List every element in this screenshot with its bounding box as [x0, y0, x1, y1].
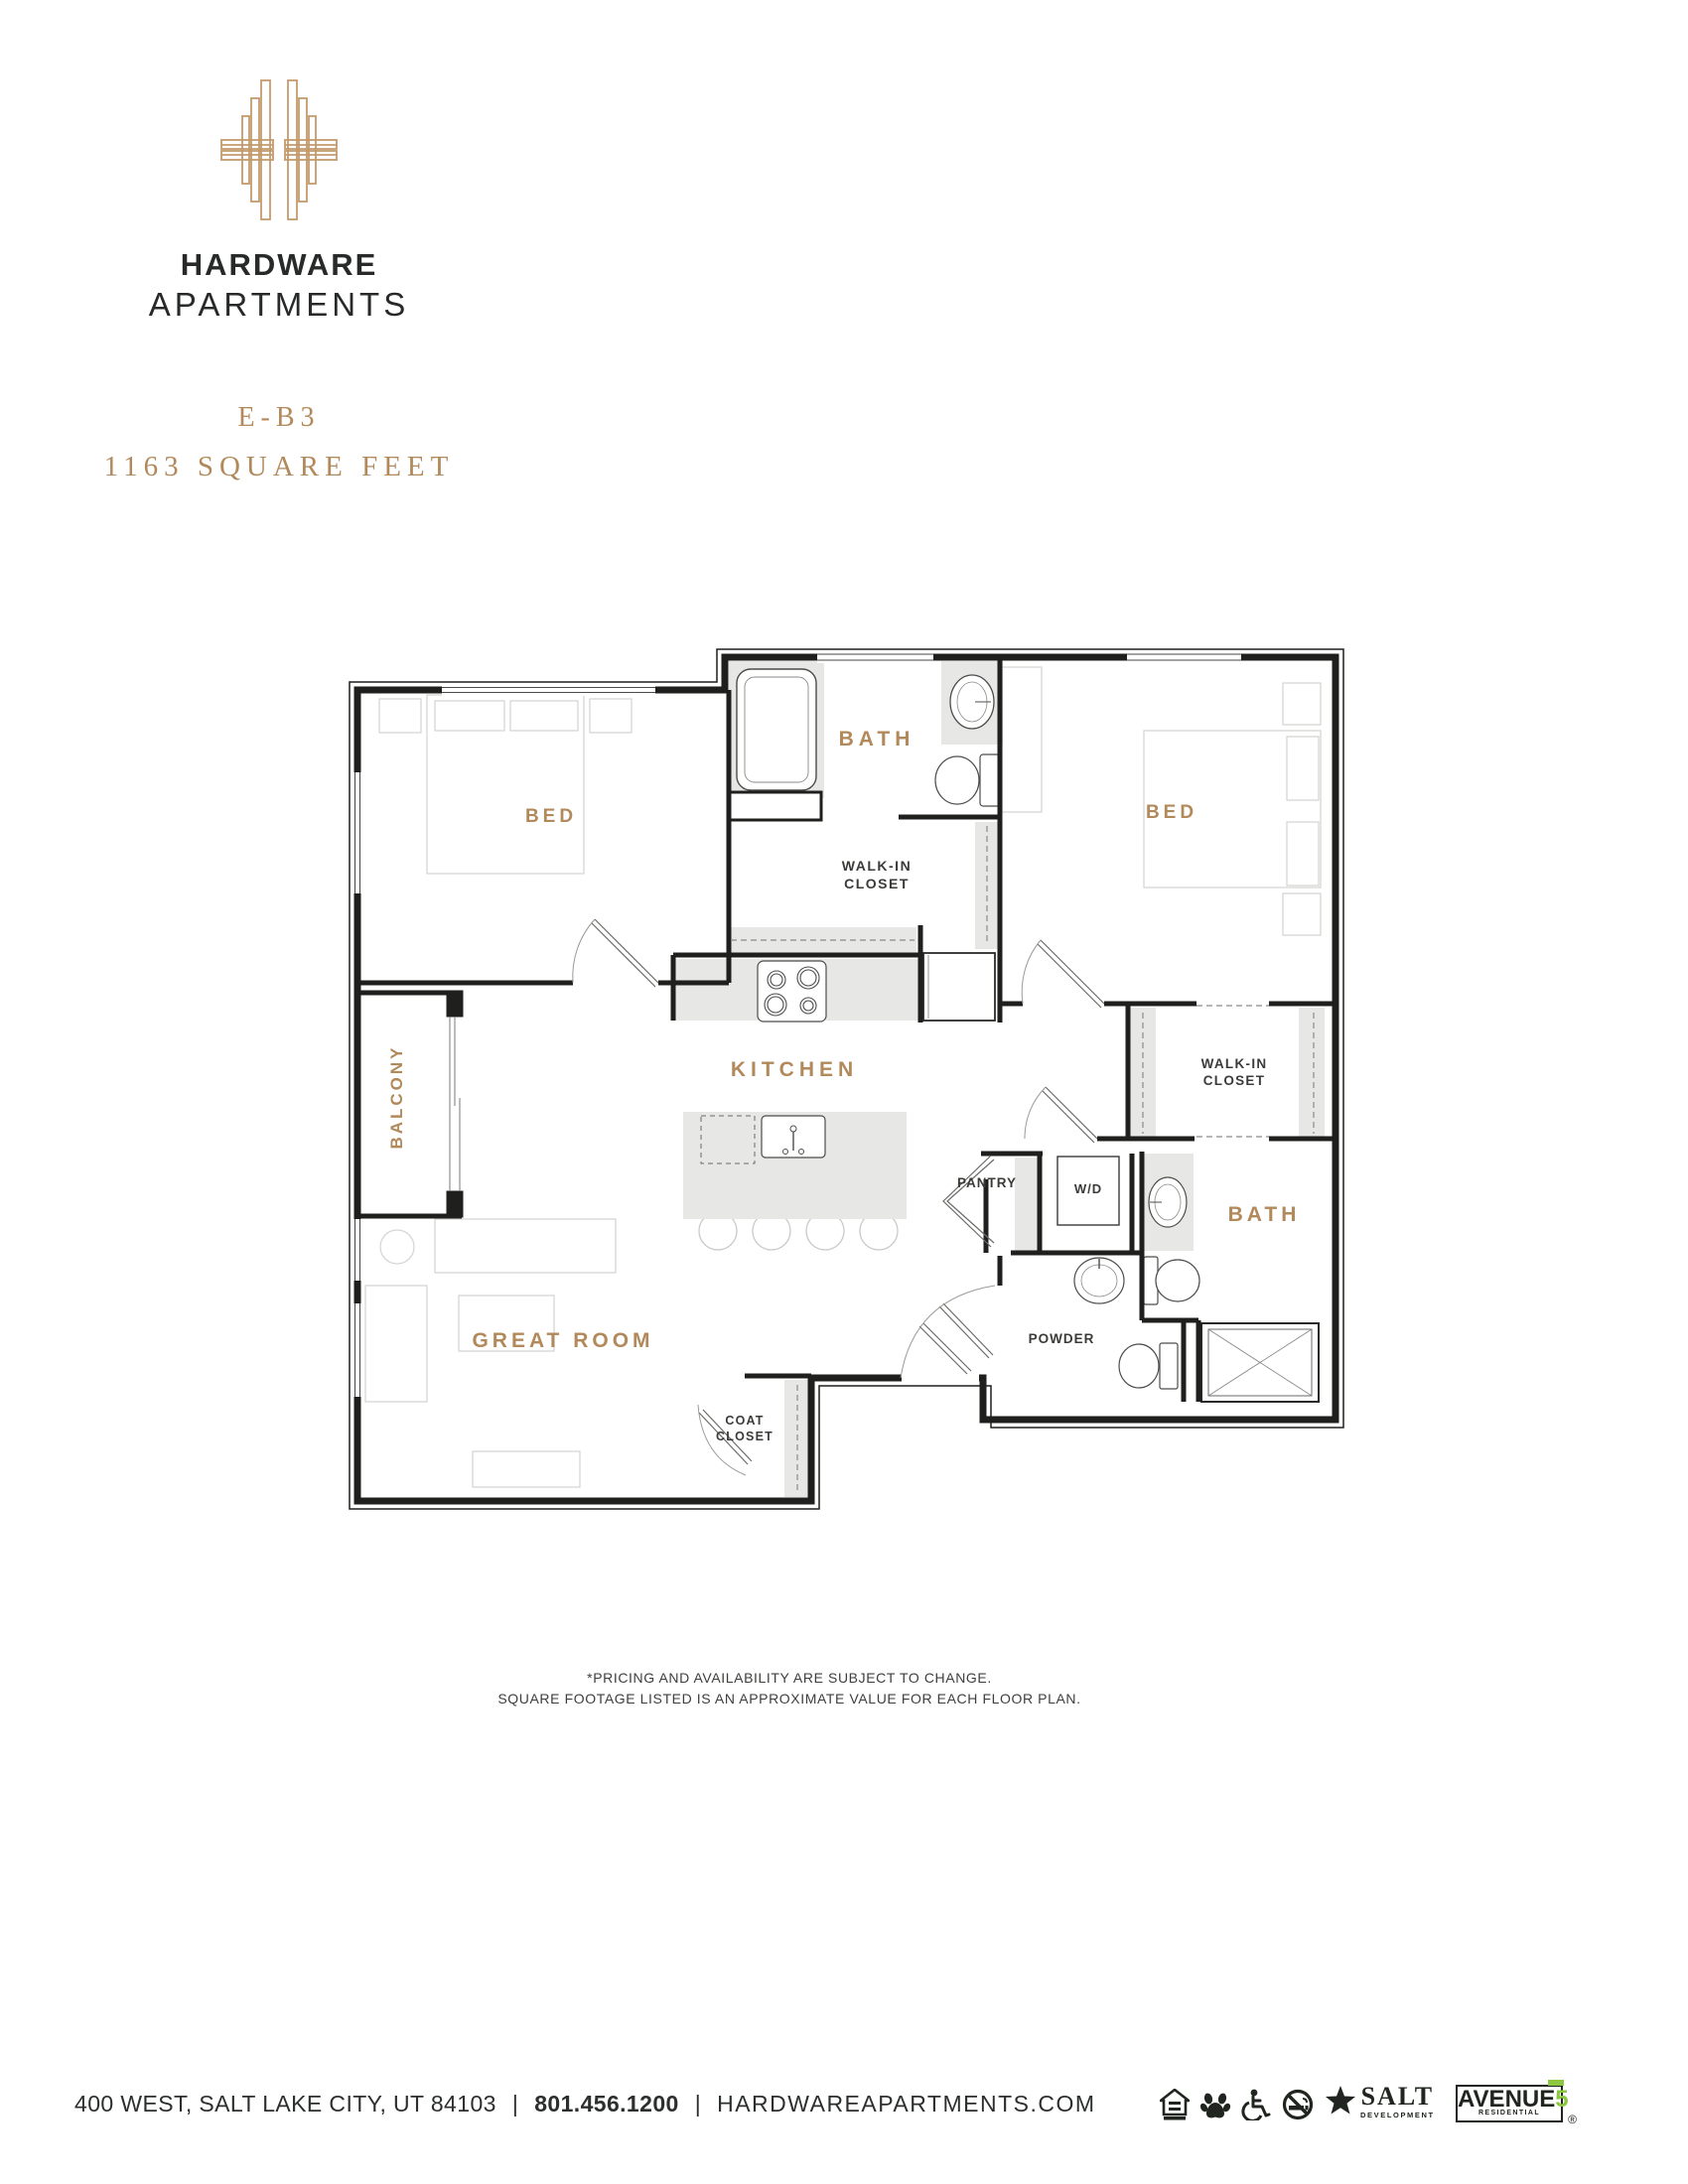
salt-logo-name: SALT — [1360, 2085, 1435, 2109]
label-washer-dryer: W/D — [1074, 1181, 1102, 1196]
floor-plan-flyer-page: HARDWARE APARTMENTS E-B3 1163 SQUARE FEE… — [0, 0, 1688, 2184]
bed-left-door-leaf — [592, 919, 658, 987]
footer-website: HARDWAREAPARTMENTS.COM — [717, 2091, 1095, 2116]
label-balcony: BALCONY — [387, 1044, 406, 1149]
brand-name-line2: APARTMENTS — [80, 286, 478, 324]
salt-development-logo: SALT DEVELOPMENT — [1325, 2085, 1435, 2119]
bathtub-fixture — [737, 669, 816, 790]
disclaimer-line2: SQUARE FOOTAGE LISTED IS AN APPROXIMATE … — [293, 1689, 1286, 1709]
footer-contact-line: 400 WEST, SALT LAKE CITY, UT 84103|801.4… — [74, 2091, 1096, 2117]
bath-vanity — [729, 792, 821, 820]
avenue5-residential-logo: AVENUE5 RESIDENTIAL ® — [1456, 2085, 1563, 2122]
label-bed-right: BED — [1146, 802, 1197, 823]
refrigerator-fixture — [923, 953, 995, 1021]
bed-left-furniture — [427, 695, 584, 874]
label-powder: POWDER — [1029, 1331, 1095, 1346]
avenue5-digit: 5 — [1555, 2086, 1568, 2113]
plan-unit-code: E-B3 — [80, 402, 478, 434]
disclaimer-line1: *PRICING AND AVAILABILITY ARE SUBJECT TO… — [293, 1668, 1286, 1689]
label-bath-top: BATH — [839, 728, 915, 751]
footer-separator: | — [512, 2091, 518, 2116]
salt-star-icon — [1325, 2085, 1356, 2116]
registered-trademark-symbol: ® — [1568, 2113, 1577, 2126]
powder-toilet-fixture — [1160, 1343, 1178, 1389]
wheelchair-accessible-icon — [1241, 2089, 1271, 2120]
label-bed-left: BED — [525, 806, 577, 827]
avenue5-logo-box: AVENUE5 RESIDENTIAL ® — [1456, 2085, 1563, 2122]
label-walkin-right-line1: WALK-IN — [1201, 1056, 1268, 1071]
label-walkin-right-line2: CLOSET — [1203, 1073, 1266, 1088]
salt-logo-subtitle: DEVELOPMENT — [1360, 2111, 1435, 2119]
avenue5-word: AVENUE — [1458, 2086, 1555, 2113]
label-pantry: PANTRY — [957, 1175, 1017, 1190]
floor-plan-drawing: BED BATH WALK-IN CLOSET BED BALCONY KITC… — [328, 596, 1350, 1539]
label-kitchen: KITCHEN — [731, 1058, 858, 1081]
fixtures — [701, 669, 1319, 1402]
bath-top-toilet-fixture — [980, 754, 1000, 806]
avenue5-green-notch — [1548, 2080, 1564, 2086]
label-coat-closet-line1: COAT — [725, 1414, 764, 1428]
plan-title-block: E-B3 1163 SQUARE FEET — [80, 402, 478, 483]
no-smoking-icon — [1282, 2089, 1314, 2120]
sofa-furniture — [435, 1219, 616, 1273]
plan-square-feet: 1163 SQUARE FEET — [80, 451, 478, 483]
footer-phone: 801.456.1200 — [534, 2091, 679, 2116]
brand-block: HARDWARE APARTMENTS — [80, 79, 478, 324]
disclaimer-block: *PRICING AND AVAILABILITY ARE SUBJECT TO… — [293, 1668, 1286, 1709]
equal-housing-opportunity-icon — [1160, 2089, 1190, 2120]
label-walkin-top-line2: CLOSET — [844, 876, 910, 891]
bed-right-door-leaf — [1038, 940, 1104, 1008]
label-walkin-top-line1: WALK-IN — [842, 858, 912, 874]
brand-name-line1: HARDWARE — [80, 247, 478, 283]
footer-separator: | — [695, 2091, 701, 2116]
hall-bath-door-leaf — [1043, 1087, 1097, 1143]
hardware-logo-icon — [219, 79, 339, 220]
room-labels: BED BATH WALK-IN CLOSET BED BALCONY KITC… — [387, 728, 1300, 1443]
footer-amenity-icons — [1160, 2089, 1314, 2120]
label-bath-right: BATH — [1228, 1203, 1301, 1226]
balcony-sliding-door — [450, 1017, 460, 1191]
entry-door-opening — [902, 1371, 979, 1385]
label-coat-closet-line2: CLOSET — [716, 1430, 774, 1443]
footer-address: 400 WEST, SALT LAKE CITY, UT 84103 — [74, 2091, 496, 2116]
pet-friendly-paw-icon — [1200, 2089, 1230, 2120]
label-great-room: GREAT ROOM — [472, 1329, 653, 1352]
entry-door-leaf — [939, 1303, 993, 1358]
